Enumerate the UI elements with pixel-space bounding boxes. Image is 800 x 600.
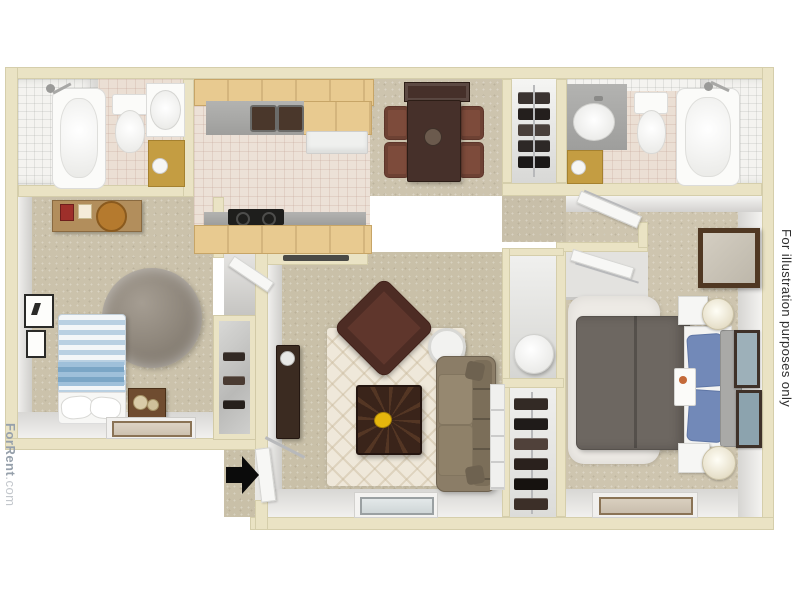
breakfast-tray: [674, 368, 696, 406]
shoe-row-3: [514, 438, 548, 450]
wall-art-right-1: [734, 330, 760, 388]
candle-2: [147, 399, 159, 411]
dresser-red-box: [60, 204, 74, 221]
bedroom-right-window: [599, 497, 693, 515]
bed-right-comforter: [576, 316, 690, 450]
sofa-pillow-2: [465, 465, 486, 486]
closet-shoes-b: [223, 376, 245, 385]
shoe-row-2: [514, 418, 548, 430]
kitchen-sink-basin-2: [277, 105, 304, 132]
entry-arrow-head: [242, 456, 259, 494]
sofa-pillow-1: [464, 360, 485, 381]
table-centerpiece: [424, 128, 442, 146]
shoe-row-5: [514, 478, 548, 490]
shoe-row-6: [514, 498, 548, 510]
tray-item: [679, 376, 687, 384]
wall-mirror: [698, 228, 760, 288]
closet-column-mid-frame: [502, 378, 564, 388]
faucet-right: [594, 96, 603, 101]
candle-1: [133, 395, 148, 410]
bedroom-left-window: [112, 421, 192, 437]
buffet-cabinet: [404, 82, 470, 102]
burner-1: [236, 212, 250, 226]
entry-arrow-shaft: [226, 467, 243, 483]
wall-art-left-2: [26, 330, 46, 358]
wall-north: [5, 67, 774, 79]
bed-left-blue-band: [58, 362, 124, 386]
laundry-hamper: [514, 334, 554, 374]
shoe-row-1: [514, 398, 548, 410]
lamp-2: [702, 446, 736, 480]
closet-rod: [533, 85, 535, 177]
toilet-paper-left: [152, 158, 168, 174]
closet-shoes-c: [223, 400, 245, 409]
dining-chair-3: [458, 106, 484, 140]
media-cabinet-knob: [280, 351, 295, 366]
wall-art-right-2: [736, 390, 762, 448]
refrigerator: [306, 131, 368, 154]
wall-south: [250, 517, 774, 530]
watermark-forrent: ForRent.com: [3, 423, 18, 507]
dresser-cup: [78, 204, 92, 219]
dresser-round-tray: [96, 201, 127, 232]
kitchen-cabinets-east: [302, 101, 372, 135]
wall-dining-closet: [502, 79, 512, 183]
kitchen-cabinets-south: [194, 225, 372, 254]
living-window: [360, 497, 434, 515]
wall-living-west-lower: [255, 500, 268, 530]
bathtub-right-basin: [685, 97, 731, 177]
wall-east: [762, 67, 774, 530]
wall-bedroom-right-door-jamb: [638, 222, 648, 248]
watermark-forrent-brand: ForRent: [3, 423, 18, 476]
wall-art-left-1: [24, 294, 54, 328]
toilet-paper-right: [571, 160, 586, 175]
closet-shoes-a: [223, 352, 245, 361]
wall-west: [5, 67, 18, 450]
comforter-fold: [634, 316, 637, 448]
wall-closet-bath-right: [556, 79, 567, 183]
floorplan-image: ForRent.com For illustration purposes on…: [0, 0, 800, 600]
dining-chair-4: [458, 142, 484, 178]
sink-basin-left: [150, 90, 181, 130]
watermark-disclaimer: For illustration purposes only: [779, 229, 794, 407]
lamp-1: [702, 298, 734, 330]
kitchen-pass-vent: [283, 255, 349, 261]
burner-2: [262, 212, 276, 226]
shoe-closet-rod: [531, 392, 533, 514]
closet-column-top-frame: [502, 248, 564, 256]
shoe-row-4: [514, 458, 548, 470]
sofa-seat-cushion-1: [438, 374, 473, 425]
table-decor-dot: [420, 118, 426, 124]
watermark-forrent-suffix: .com: [3, 476, 18, 506]
toilet-right-bowl: [637, 110, 666, 154]
white-shelf-unit: [490, 384, 505, 490]
kitchen-sink-basin-1: [250, 105, 277, 132]
bathtub-left-basin: [60, 98, 98, 178]
sink-basin-right: [573, 103, 615, 141]
toilet-left-bowl: [115, 110, 145, 153]
wall-bedroom-right-closet-top: [556, 242, 648, 252]
